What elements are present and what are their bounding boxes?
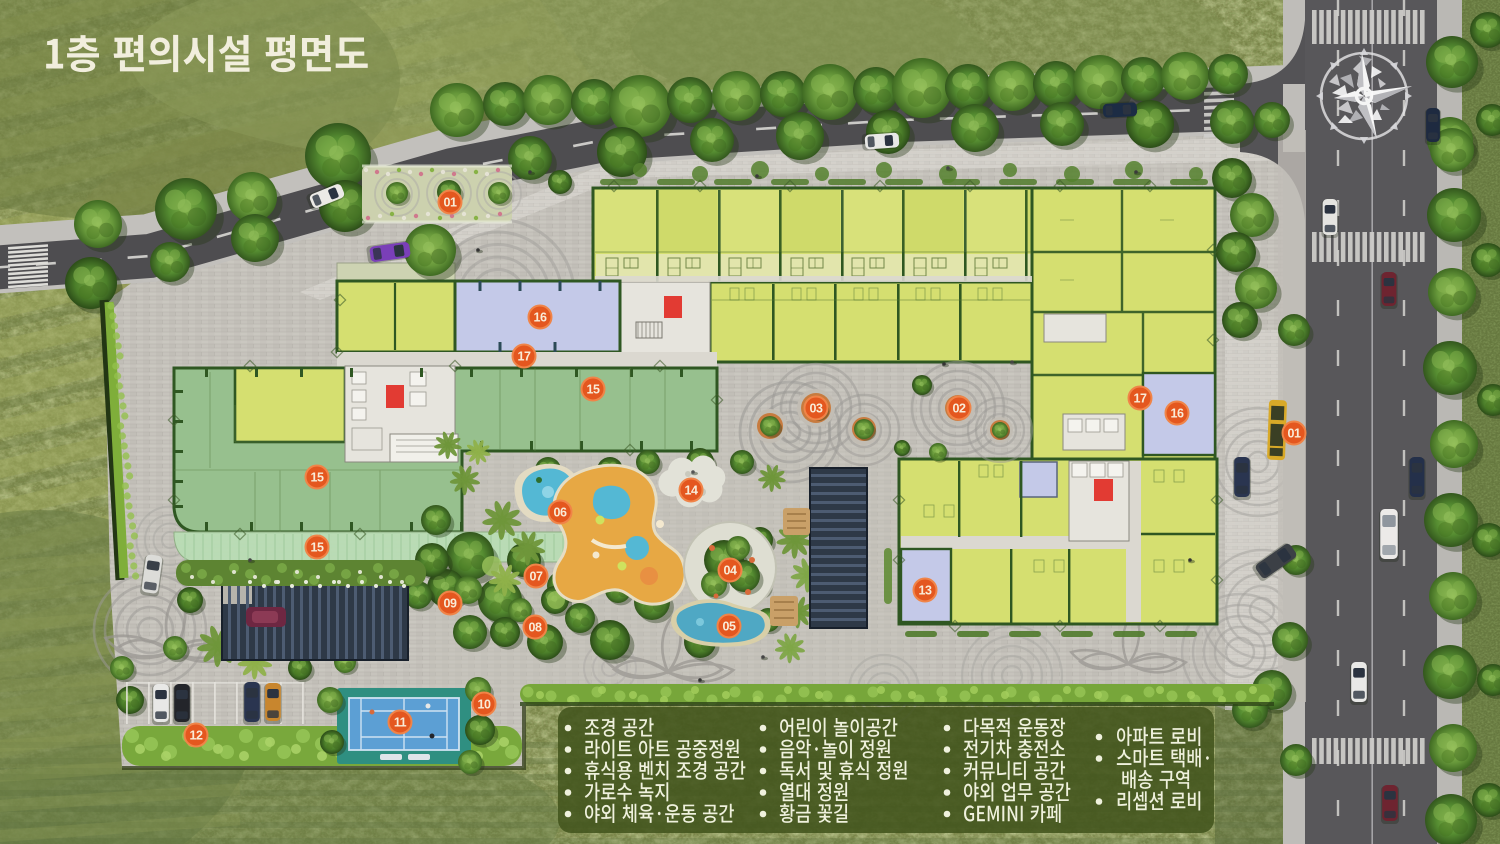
svg-text:06: 06 — [554, 505, 567, 519]
svg-text:17: 17 — [1134, 391, 1147, 405]
svg-text:08: 08 — [529, 620, 542, 634]
svg-text:12: 12 — [190, 728, 203, 742]
svg-text:14: 14 — [685, 483, 698, 497]
svg-text:16: 16 — [1171, 406, 1184, 420]
svg-text:02: 02 — [953, 401, 966, 415]
svg-text:10: 10 — [478, 697, 491, 711]
svg-text:13: 13 — [919, 583, 932, 597]
svg-text:15: 15 — [311, 470, 324, 484]
svg-text:15: 15 — [587, 382, 600, 396]
svg-text:09: 09 — [444, 596, 457, 610]
svg-text:05: 05 — [723, 619, 736, 633]
svg-text:03: 03 — [810, 401, 823, 415]
svg-text:04: 04 — [724, 563, 737, 577]
svg-text:15: 15 — [311, 540, 324, 554]
svg-text:17: 17 — [518, 349, 531, 363]
svg-text:01: 01 — [444, 195, 457, 209]
svg-text:16: 16 — [534, 310, 547, 324]
svg-text:11: 11 — [394, 715, 407, 729]
svg-text:07: 07 — [530, 569, 543, 583]
svg-text:01: 01 — [1288, 426, 1301, 440]
